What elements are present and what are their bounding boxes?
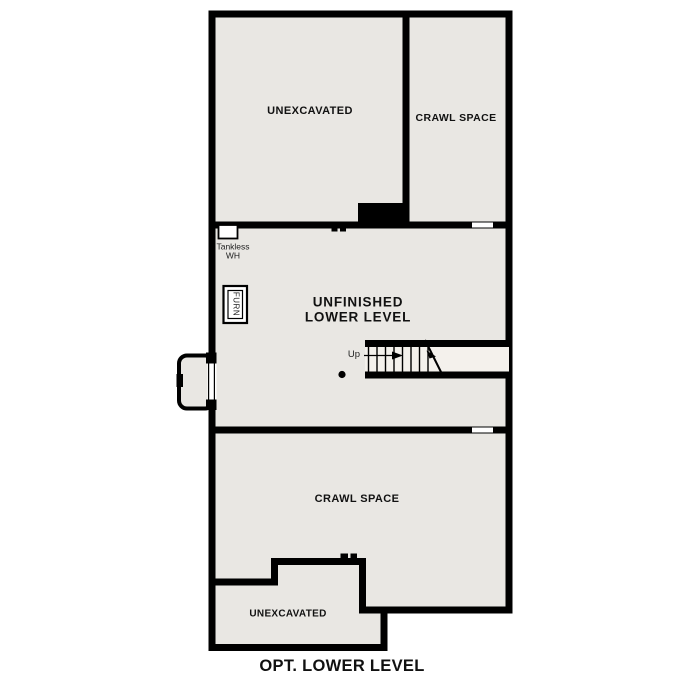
tankless-line2: WH [216,251,249,260]
floorplan-drawing [0,0,687,687]
wall-tick-lower-a [341,554,349,560]
window-well-step-tick [177,374,184,387]
solid-wall-block [358,203,410,227]
crawl-access-opening-top [472,223,493,228]
unfinished-line1: UNFINISHED [305,296,411,311]
window-jamb-top [206,353,217,364]
room-label-unfinished-lower-level: UNFINISHED LOWER LEVEL [305,296,411,325]
tankless-wh-label: Tankless WH [216,243,249,260]
plan-title: OPT. LOWER LEVEL [259,657,424,675]
stairs-up-label: Up [348,350,360,360]
room-label-unexcavated-top: UNEXCAVATED [267,105,353,117]
room-label-crawl-space-bottom: CRAWL SPACE [315,493,400,505]
furnace-label: FURN [231,292,240,316]
room-label-crawl-space-top: CRAWL SPACE [415,113,496,125]
wall-tick-upper-b [340,228,346,232]
support-column-dot [338,371,345,378]
floorplan-canvas: UNEXCAVATED CRAWL SPACE UNFINISHED LOWER… [0,0,687,687]
crawl-access-opening-bottom [472,428,493,433]
window-jamb-bottom [206,400,217,411]
wall-tick-upper-a [332,228,338,232]
tankless-water-heater [219,225,238,239]
wall-tick-lower-b [351,554,358,560]
room-label-unexcavated-bottom: UNEXCAVATED [249,609,326,620]
building-footprint-outer-walls [212,14,509,648]
unfinished-line2: LOWER LEVEL [305,310,411,325]
